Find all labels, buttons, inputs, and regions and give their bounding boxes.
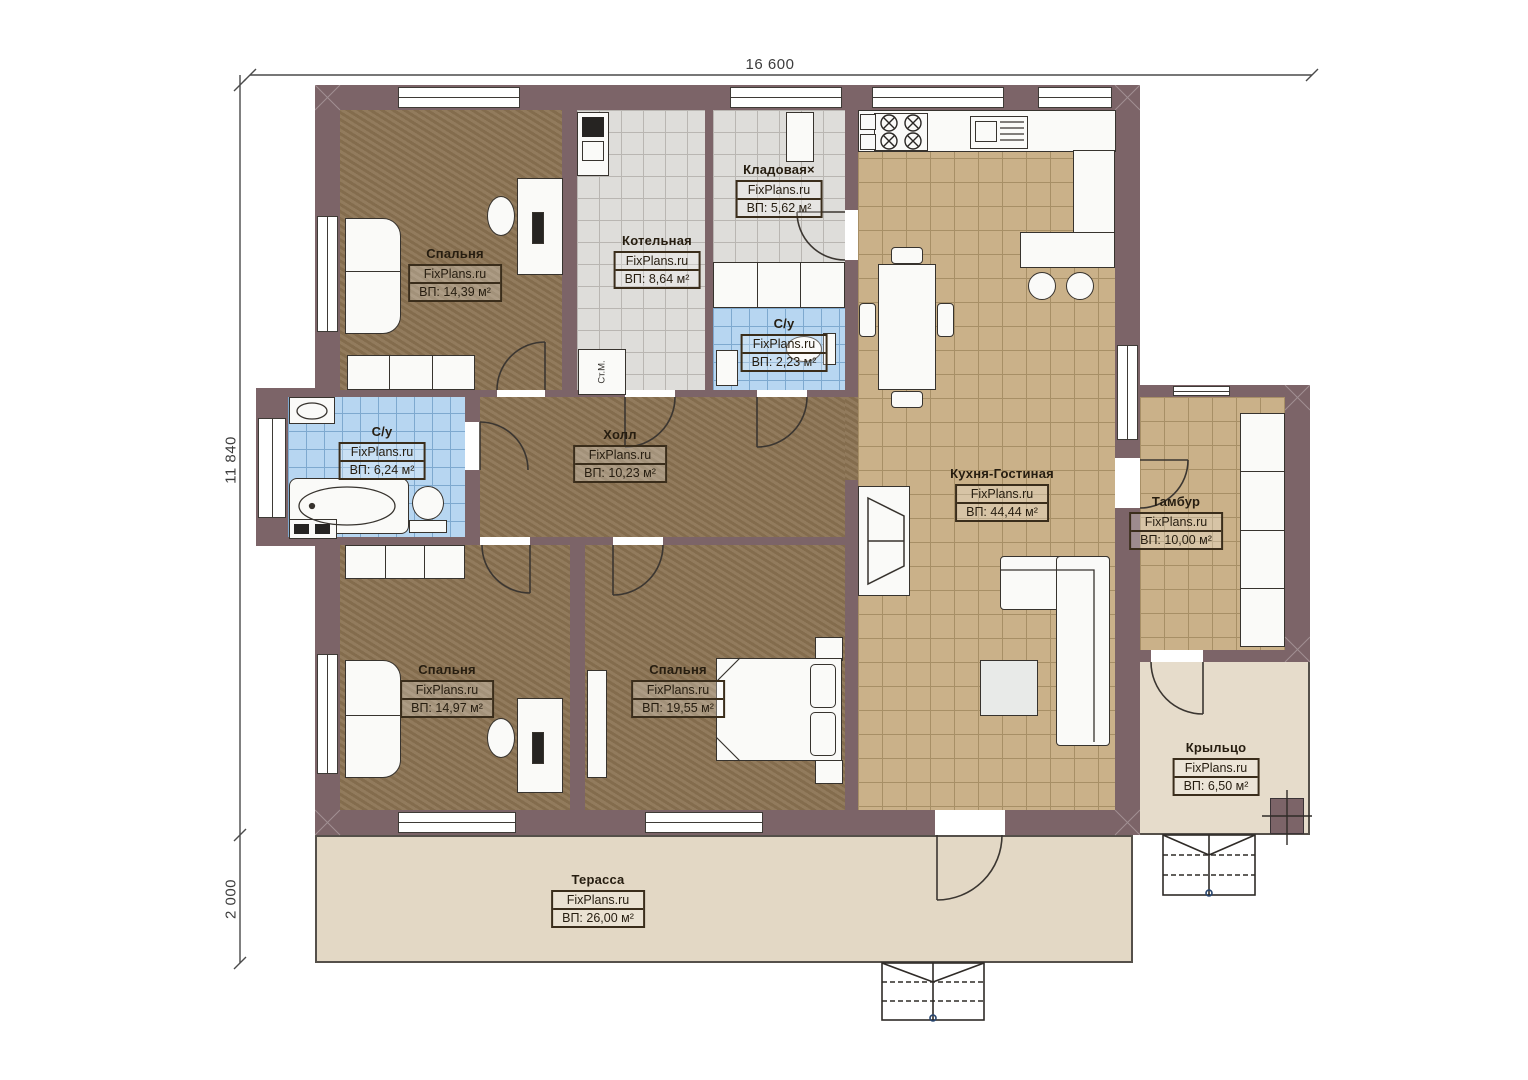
wall-segment <box>807 390 845 397</box>
vestibule-wardrobe <box>1240 413 1285 647</box>
bar-stool <box>1066 272 1094 300</box>
window <box>1173 386 1230 396</box>
room-area: ВП: 10,00 м² <box>1131 532 1221 548</box>
stove <box>874 113 928 151</box>
window <box>730 87 842 108</box>
wall-segment <box>713 390 757 397</box>
wall-segment <box>705 110 713 392</box>
room-watermark: FixPlans.ru <box>341 444 424 462</box>
room-watermark: FixPlans.ru <box>957 486 1047 504</box>
fridge <box>970 116 1028 149</box>
room-area: ВП: 5,62 м² <box>738 200 821 216</box>
door-opening <box>845 210 858 260</box>
room-label-wc-small: С/у FixPlans.ruВП: 2,23 м² <box>741 316 828 372</box>
window <box>1038 87 1112 108</box>
room-area: ВП: 6,50 м² <box>1175 778 1258 794</box>
cabinet-door <box>315 524 330 534</box>
wall-segment <box>530 537 613 545</box>
wall-segment <box>1203 650 1285 662</box>
room-name: Холл <box>573 427 667 442</box>
room-label-storage: Кладовая× FixPlans.ruВП: 5,62 м² <box>736 162 823 218</box>
wall-segment <box>845 480 858 810</box>
wardrobe <box>345 545 465 579</box>
room-label-bedroom-3: Спальня FixPlans.ruВП: 19,55 м² <box>631 662 725 718</box>
room-label-terrace: Терасса FixPlans.ruВП: 26,00 м² <box>551 872 645 928</box>
window <box>317 216 338 332</box>
door-opening <box>613 537 663 545</box>
wall-segment <box>663 537 845 545</box>
room-watermark: FixPlans.ru <box>633 682 723 700</box>
boiler-hob <box>582 117 604 137</box>
porch-steps <box>1163 835 1255 896</box>
sink <box>289 397 335 424</box>
cabinet-door <box>294 524 309 534</box>
wall-segment <box>465 395 480 422</box>
duct <box>786 112 814 162</box>
desk-chair <box>487 196 515 236</box>
wardrobe <box>587 670 607 778</box>
room-area: ВП: 10,23 м² <box>575 465 665 481</box>
wall-segment <box>1140 650 1151 662</box>
window <box>398 812 516 833</box>
pillow <box>810 712 836 756</box>
room-name: Спальня <box>408 246 502 261</box>
room-watermark: FixPlans.ru <box>553 892 643 910</box>
toilet-tank <box>409 520 447 533</box>
wall-segment <box>465 470 480 537</box>
window <box>317 654 338 774</box>
room-label-porch: Крыльцо FixPlans.ruВП: 6,50 м² <box>1173 740 1260 796</box>
boiler-sink <box>582 141 604 161</box>
sink <box>716 350 738 386</box>
wall-segment <box>562 110 577 390</box>
dining-chair <box>937 303 954 337</box>
floor-plan: Ст.М. <box>0 0 1528 1080</box>
room-watermark: FixPlans.ru <box>410 266 500 284</box>
room-area: ВП: 26,00 м² <box>553 910 643 926</box>
kitchen-sink-unit <box>860 134 876 150</box>
wall-segment <box>570 545 585 810</box>
room-label-kitchen-living: Кухня-Гостиная FixPlans.ruВП: 44,44 м² <box>950 466 1054 522</box>
washing-machine-label: Ст.М. <box>597 360 608 383</box>
room-watermark: FixPlans.ru <box>1175 760 1258 778</box>
door-opening <box>465 422 480 470</box>
room-watermark: FixPlans.ru <box>738 182 821 200</box>
room-watermark: FixPlans.ru <box>743 336 826 354</box>
door-opening <box>1151 650 1203 662</box>
room-area: ВП: 8,64 м² <box>616 271 699 287</box>
door-opening <box>480 537 530 545</box>
wall-segment <box>1285 385 1310 662</box>
fridge-door <box>975 121 997 142</box>
door-opening <box>935 810 1005 835</box>
bed-divider <box>346 715 400 716</box>
bathroom-cabinet <box>289 519 337 539</box>
bar-counter <box>1020 232 1115 268</box>
toilet <box>412 486 444 520</box>
pillow <box>810 664 836 708</box>
wall-segment <box>675 390 713 397</box>
room-label-bedroom-2: Спальня FixPlans.ruВП: 14,97 м² <box>400 662 494 718</box>
room-name: Терасса <box>551 872 645 887</box>
room-name: Котельная <box>614 233 701 248</box>
door-opening <box>497 390 545 397</box>
room-area: ВП: 19,55 м² <box>633 700 723 716</box>
room-name: Спальня <box>631 662 725 677</box>
room-watermark: FixPlans.ru <box>1131 514 1221 532</box>
bed-divider <box>346 271 400 272</box>
window <box>398 87 520 108</box>
tv-stand <box>858 486 910 596</box>
dining-chair <box>859 303 876 337</box>
dimension-height: 11 840 <box>223 436 240 484</box>
window <box>872 87 1004 108</box>
room-watermark: FixPlans.ru <box>402 682 492 700</box>
desk-chair <box>487 718 515 758</box>
room-label-bedroom-1: Спальня FixPlans.ruВП: 14,39 м² <box>408 246 502 302</box>
dining-table <box>878 264 936 390</box>
room-watermark: FixPlans.ru <box>575 447 665 465</box>
corner-sofa <box>1056 556 1110 746</box>
coffee-table <box>980 660 1038 716</box>
room-name: Кладовая× <box>736 162 823 177</box>
wall-segment <box>545 390 577 397</box>
wall-segment <box>340 537 480 545</box>
computer-monitor <box>532 732 544 764</box>
room-area: ВП: 14,39 м² <box>410 284 500 300</box>
porch-column <box>1270 798 1304 834</box>
room-name: Кухня-Гостиная <box>950 466 1054 481</box>
room-name: С/у <box>339 424 426 439</box>
terrace-area <box>315 835 1133 963</box>
bed <box>345 218 401 334</box>
room-name: С/у <box>741 316 828 331</box>
hall-kitchen-passage-floor <box>845 397 858 480</box>
window <box>645 812 763 833</box>
room-watermark: FixPlans.ru <box>616 253 699 271</box>
kitchen-counter <box>1073 150 1115 234</box>
closet <box>713 262 845 308</box>
bar-stool <box>1028 272 1056 300</box>
dining-chair <box>891 391 923 408</box>
kitchen-sink-unit <box>860 114 876 130</box>
room-area: ВП: 6,24 м² <box>341 462 424 478</box>
room-name: Тамбур <box>1129 494 1223 509</box>
dimension-terrace-depth: 2 000 <box>223 879 240 919</box>
room-area: ВП: 2,23 м² <box>743 354 826 370</box>
room-name: Крыльцо <box>1173 740 1260 755</box>
room-name: Спальня <box>400 662 494 677</box>
bed <box>345 660 401 778</box>
room-area: ВП: 14,97 м² <box>402 700 492 716</box>
dining-chair <box>891 247 923 264</box>
wardrobe <box>347 355 475 390</box>
room-label-vestibule: Тамбур FixPlans.ruВП: 10,00 м² <box>1129 494 1223 550</box>
window <box>258 418 286 518</box>
terrace-steps <box>882 963 984 1021</box>
room-label-bathroom: С/у FixPlans.ruВП: 6,24 м² <box>339 424 426 480</box>
window <box>1117 345 1138 440</box>
nightstand <box>815 760 843 784</box>
door-opening <box>625 390 675 397</box>
room-label-boiler: Котельная FixPlans.ruВП: 8,64 м² <box>614 233 701 289</box>
dimension-width: 16 600 <box>746 56 795 73</box>
room-label-hall: Холл FixPlans.ruВП: 10,23 м² <box>573 427 667 483</box>
room-area: ВП: 44,44 м² <box>957 504 1047 520</box>
door-opening <box>757 390 807 397</box>
boiler-unit <box>577 112 609 176</box>
computer-monitor <box>532 212 544 244</box>
